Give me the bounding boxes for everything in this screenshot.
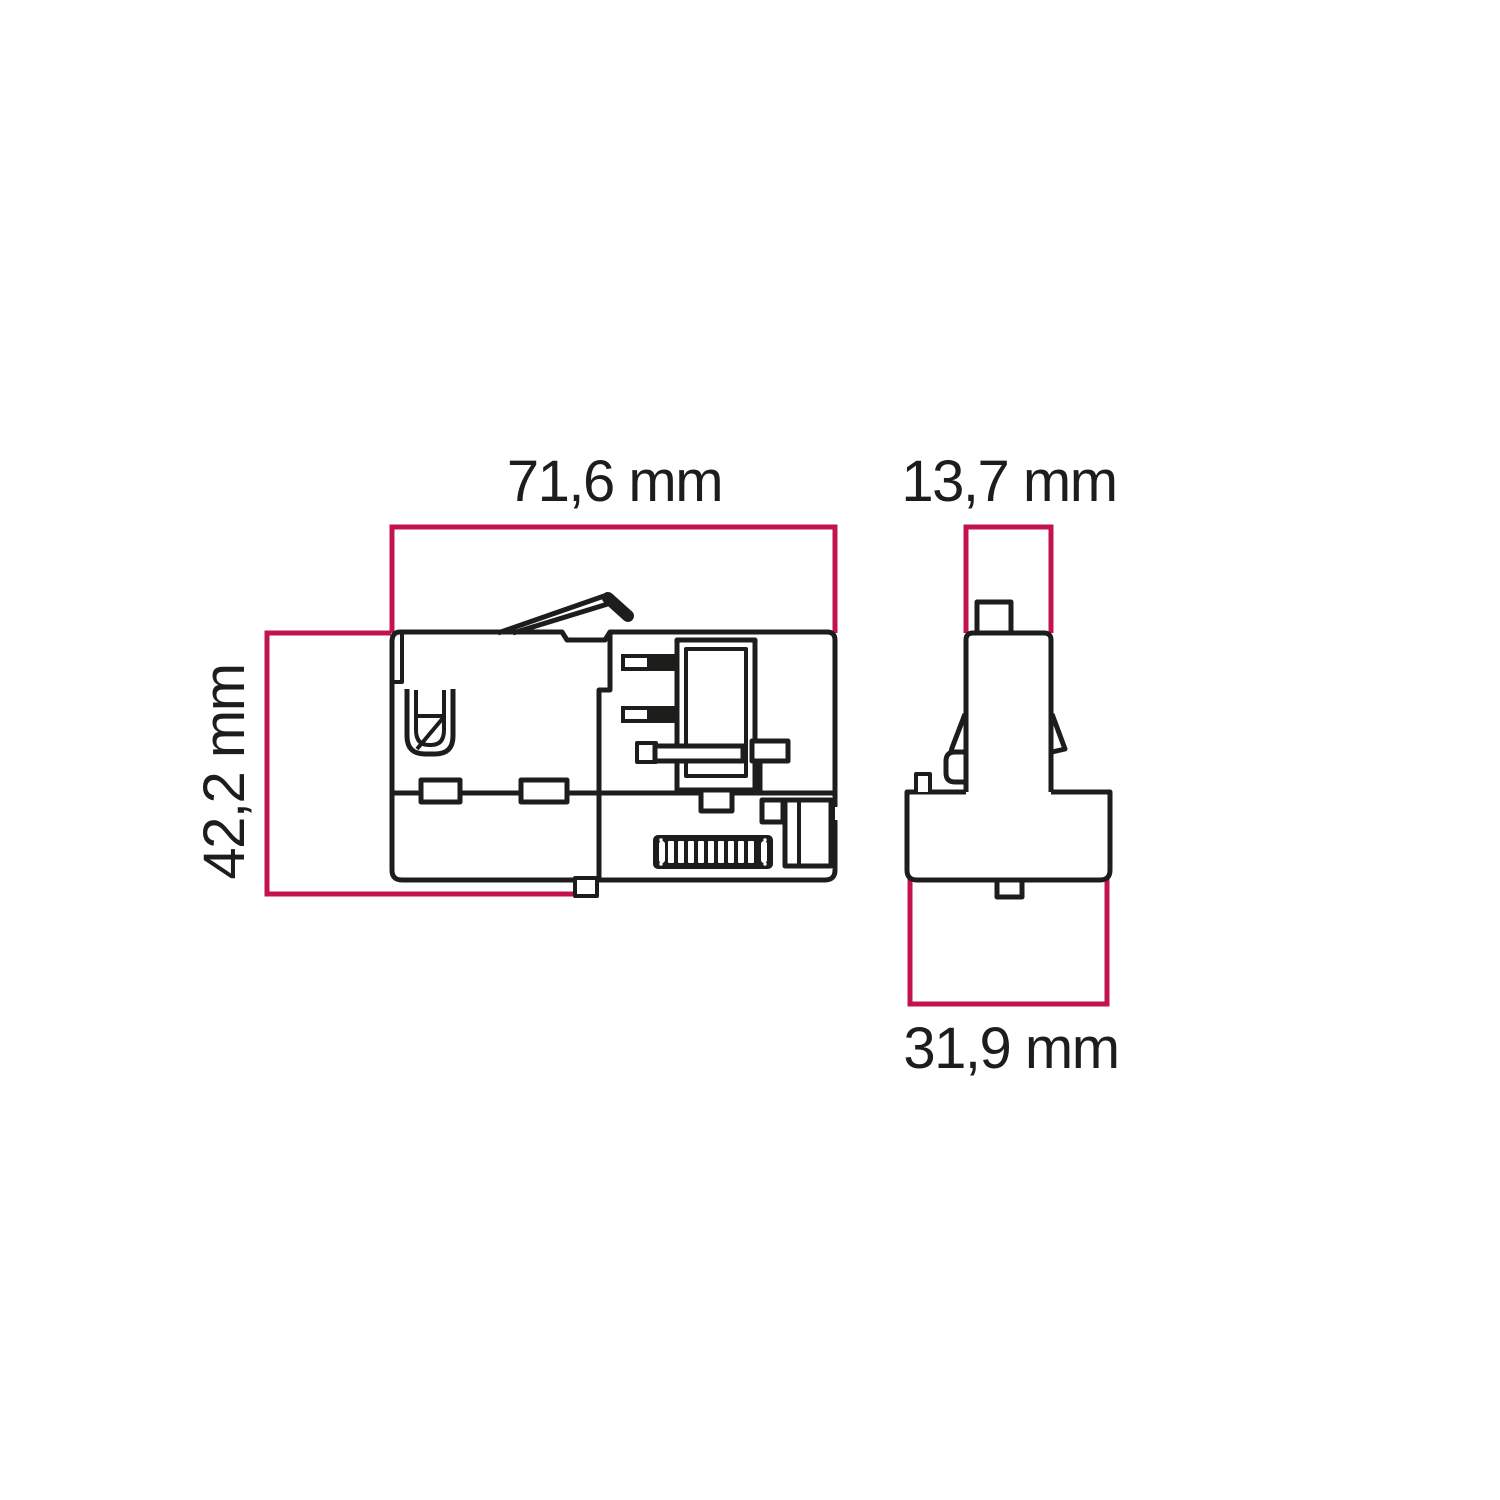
- release-lever: [498, 595, 628, 633]
- dimension-bracket-side-width: [392, 527, 835, 633]
- end-view-column: [966, 633, 1051, 792]
- dimension-label-end-base-width: 31,9 mm: [901, 1014, 1121, 1084]
- end-view-drawing: [907, 602, 1110, 897]
- terminal-block-right: [521, 780, 567, 802]
- side-view-drawing: [392, 595, 843, 896]
- diagram-canvas: 71,6 mm 13,7 mm 42,2 mm 31,9 mm: [0, 0, 1500, 1500]
- bottom-tab-side-view: [575, 878, 597, 896]
- terminal-block-left: [421, 780, 460, 802]
- right-edge-notch: [833, 807, 843, 820]
- bottom-tab-end-view: [997, 880, 1022, 897]
- end-view-top-pin: [977, 602, 1011, 633]
- left-latch: [946, 714, 965, 782]
- dimension-label-side-height: 42,2 mm: [190, 662, 260, 882]
- ribbed-grill: [653, 835, 773, 869]
- dimension-label-side-width: 71,6 mm: [393, 447, 836, 517]
- dimension-label-end-top-width: 13,7 mm: [899, 447, 1119, 517]
- end-view-base: [907, 792, 1110, 880]
- contact-block: [677, 640, 755, 790]
- right-latch: [1052, 714, 1065, 752]
- base-left-pin: [916, 774, 930, 792]
- contact-block-tab: [701, 790, 732, 811]
